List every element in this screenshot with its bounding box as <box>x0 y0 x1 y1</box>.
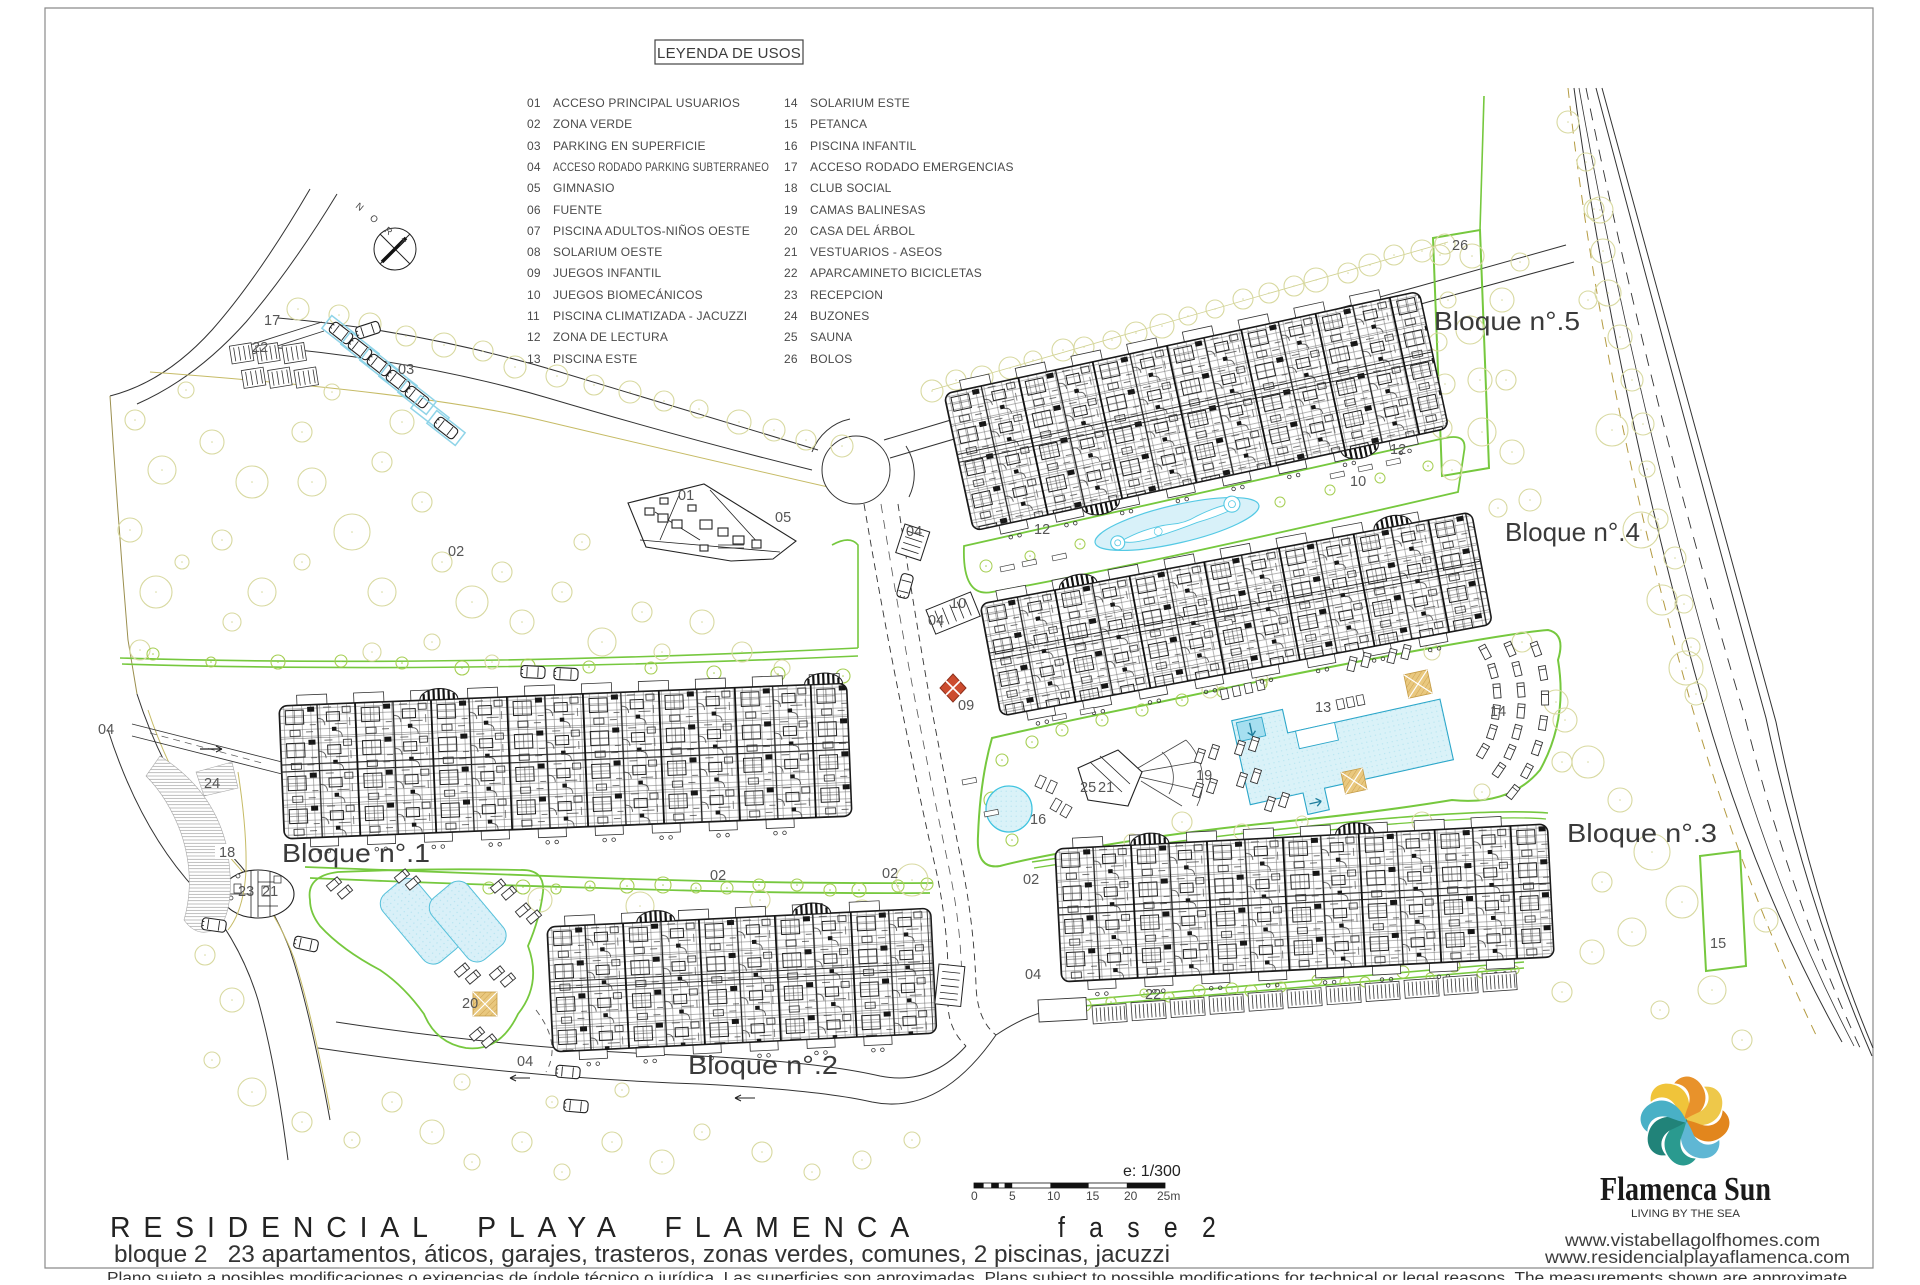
svg-text:04: 04 <box>98 722 114 738</box>
svg-text:www.residencialplayaflamenca.c: www.residencialplayaflamenca.com <box>1544 1247 1850 1267</box>
svg-text:12: 12 <box>1034 522 1050 538</box>
svg-text:22: 22 <box>784 266 798 280</box>
svg-text:09: 09 <box>527 266 541 280</box>
svg-text:25m: 25m <box>1157 1189 1180 1203</box>
svg-text:10: 10 <box>527 288 541 302</box>
svg-text:24: 24 <box>784 309 798 323</box>
svg-text:08: 08 <box>527 245 541 259</box>
svg-text:ACCESO RODADO EMERGENCIAS: ACCESO RODADO EMERGENCIAS <box>810 160 1014 174</box>
svg-text:fase2: fase2 <box>1058 1212 1240 1244</box>
svg-text:09: 09 <box>958 698 974 714</box>
svg-text:10: 10 <box>1350 474 1366 490</box>
svg-text:0: 0 <box>971 1189 978 1203</box>
svg-text:RECEPCION: RECEPCION <box>810 288 883 302</box>
svg-text:CAMAS BALINESAS: CAMAS BALINESAS <box>810 203 926 217</box>
svg-text:VESTUARIOS - ASEOS: VESTUARIOS - ASEOS <box>810 245 942 259</box>
svg-text:02: 02 <box>1023 872 1039 888</box>
svg-text:APARCAMINETO BICICLETAS: APARCAMINETO BICICLETAS <box>810 266 982 280</box>
svg-text:10: 10 <box>950 596 966 612</box>
svg-text:19: 19 <box>784 203 798 217</box>
svg-text:Bloque n°.1: Bloque n°.1 <box>282 838 430 868</box>
svg-text:13: 13 <box>527 352 541 366</box>
svg-text:BUZONES: BUZONES <box>810 309 869 323</box>
svg-text:Flamenca Sun: Flamenca Sun <box>1600 1171 1771 1208</box>
svg-text:ACCESO RODADO PARKING SUBTERRA: ACCESO RODADO PARKING SUBTERRANEO <box>553 160 769 174</box>
svg-text:17: 17 <box>264 313 280 329</box>
svg-text:GIMNASIO: GIMNASIO <box>553 181 615 195</box>
svg-text:PISCINA INFANTIL: PISCINA INFANTIL <box>810 139 917 153</box>
svg-text:05: 05 <box>775 510 791 526</box>
svg-text:01: 01 <box>678 488 694 504</box>
svg-text:15: 15 <box>784 117 798 131</box>
svg-text:PISCINA CLIMATIZADA - JACUZZI: PISCINA CLIMATIZADA - JACUZZI <box>553 309 747 323</box>
svg-text:19: 19 <box>1196 768 1212 784</box>
svg-text:SAUNA: SAUNA <box>810 330 852 344</box>
svg-text:Bloque n°.3: Bloque n°.3 <box>1567 818 1717 848</box>
svg-text:5: 5 <box>1009 1189 1016 1203</box>
svg-text:Plano sujeto a posibles modifi: Plano sujeto a posibles modificaciones o… <box>107 1270 1852 1280</box>
svg-text:22: 22 <box>252 340 268 356</box>
svg-text:18: 18 <box>784 181 798 195</box>
svg-text:26: 26 <box>784 352 798 366</box>
svg-text:10: 10 <box>1047 1189 1061 1203</box>
svg-text:FUENTE: FUENTE <box>553 203 602 217</box>
svg-text:03: 03 <box>398 362 414 378</box>
svg-text:15: 15 <box>1710 936 1726 952</box>
svg-text:14: 14 <box>1490 704 1506 720</box>
svg-text:04: 04 <box>1025 967 1041 983</box>
svg-text:25: 25 <box>1080 780 1096 796</box>
svg-text:14: 14 <box>784 96 798 110</box>
svg-text:20: 20 <box>1124 1189 1138 1203</box>
svg-text:PISCINA ADULTOS-NIÑOS OESTE: PISCINA ADULTOS-NIÑOS OESTE <box>553 224 750 238</box>
svg-text:02: 02 <box>448 544 464 560</box>
svg-text:JUEGOS BIOMECÁNICOS: JUEGOS BIOMECÁNICOS <box>553 287 703 302</box>
svg-text:SOLARIUM ESTE: SOLARIUM ESTE <box>810 96 910 110</box>
svg-text:02: 02 <box>527 117 541 131</box>
svg-text:05: 05 <box>527 181 541 195</box>
svg-text:e: 1/300: e: 1/300 <box>1123 1163 1181 1180</box>
svg-text:CLUB SOCIAL: CLUB SOCIAL <box>810 181 892 195</box>
svg-text:11: 11 <box>527 309 540 323</box>
svg-text:bloque 2 23 apartamentos, át: bloque 2 23 apartamentos, áticos, garaje… <box>114 1241 1170 1268</box>
svg-text:JUEGOS INFANTIL: JUEGOS INFANTIL <box>553 266 661 280</box>
svg-text:04: 04 <box>527 160 541 174</box>
svg-text:PARKING EN SUPERFICIE: PARKING EN SUPERFICIE <box>553 139 706 153</box>
svg-text:CASA DEL ÁRBOL: CASA DEL ÁRBOL <box>810 223 915 238</box>
svg-text:25: 25 <box>784 330 798 344</box>
svg-text:04: 04 <box>928 613 944 629</box>
svg-text:ZONA DE LECTURA: ZONA DE LECTURA <box>553 330 668 344</box>
svg-text:21: 21 <box>784 245 798 259</box>
svg-text:12: 12 <box>527 330 541 344</box>
svg-text:18: 18 <box>219 845 235 861</box>
svg-text:Bloque n°.2: Bloque n°.2 <box>688 1050 838 1080</box>
svg-text:16: 16 <box>784 139 798 153</box>
svg-text:ZONA VERDE: ZONA VERDE <box>553 117 632 131</box>
svg-text:13: 13 <box>1315 700 1331 716</box>
svg-text:23: 23 <box>784 288 798 302</box>
svg-text:02: 02 <box>710 868 726 884</box>
svg-text:03: 03 <box>527 139 541 153</box>
svg-text:Bloque n°.4: Bloque n°.4 <box>1505 517 1640 547</box>
svg-text:20: 20 <box>784 224 798 238</box>
svg-text:LIVING BY THE SEA: LIVING BY THE SEA <box>1631 1208 1741 1220</box>
svg-text:26: 26 <box>1452 238 1468 254</box>
svg-text:17: 17 <box>784 160 798 174</box>
svg-text:01: 01 <box>527 96 541 110</box>
svg-text:22: 22 <box>1145 987 1161 1003</box>
svg-text:16: 16 <box>1030 812 1046 828</box>
svg-text:20: 20 <box>462 996 478 1012</box>
svg-text:RESIDENCIAL PLAYA FLAMENCA: RESIDENCIAL PLAYA FLAMENCA <box>110 1212 922 1244</box>
svg-text:LEYENDA DE USOS: LEYENDA DE USOS <box>657 45 801 62</box>
svg-text:04: 04 <box>517 1054 533 1070</box>
svg-text:Bloque n°.5: Bloque n°.5 <box>1434 306 1580 336</box>
svg-text:BOLOS: BOLOS <box>810 352 852 366</box>
svg-text:PETANCA: PETANCA <box>810 117 867 131</box>
svg-text:12: 12 <box>1390 442 1406 458</box>
svg-text:SOLARIUM OESTE: SOLARIUM OESTE <box>553 245 663 259</box>
svg-text:PISCINA ESTE: PISCINA ESTE <box>553 352 637 366</box>
svg-text:07: 07 <box>527 224 541 238</box>
svg-text:21: 21 <box>1098 780 1114 796</box>
svg-text:ACCESO PRINCIPAL USUARIOS: ACCESO PRINCIPAL USUARIOS <box>553 96 740 110</box>
svg-text:04: 04 <box>906 524 922 540</box>
svg-text:24: 24 <box>204 776 220 792</box>
svg-text:23: 23 <box>238 884 254 900</box>
svg-text:02: 02 <box>882 866 898 882</box>
svg-text:06: 06 <box>527 203 541 217</box>
svg-text:21: 21 <box>262 884 278 900</box>
svg-text:15: 15 <box>1086 1189 1100 1203</box>
